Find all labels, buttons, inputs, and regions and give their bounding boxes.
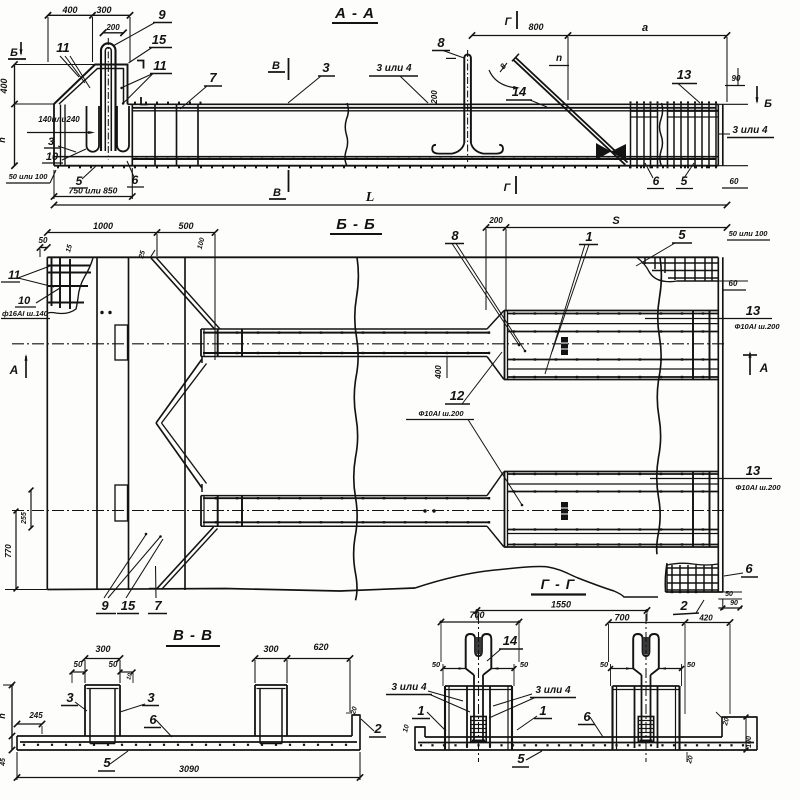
svg-text:14: 14 [503, 633, 518, 648]
svg-text:Б - Б: Б - Б [336, 216, 376, 233]
svg-text:11: 11 [56, 40, 70, 55]
svg-text:10: 10 [18, 295, 31, 307]
svg-text:h: h [0, 137, 7, 143]
svg-text:9: 9 [101, 598, 109, 613]
svg-text:420: 420 [698, 614, 713, 623]
svg-text:3: 3 [66, 690, 74, 705]
svg-text:50: 50 [687, 660, 696, 669]
svg-text:15: 15 [65, 244, 74, 253]
svg-text:10: 10 [46, 151, 59, 163]
svg-text:Г: Г [504, 182, 512, 194]
svg-text:200: 200 [430, 90, 439, 105]
svg-text:h: h [0, 713, 7, 719]
svg-text:300: 300 [96, 5, 111, 15]
svg-text:100: 100 [746, 736, 753, 748]
svg-text:15: 15 [152, 32, 167, 47]
svg-text:ф16АI ш.140: ф16АI ш.140 [2, 309, 49, 318]
svg-text:50: 50 [109, 660, 118, 669]
svg-text:50 или 100: 50 или 100 [729, 229, 769, 238]
svg-text:100: 100 [197, 237, 207, 250]
svg-text:Ф10АI ш.200: Ф10АI ш.200 [734, 322, 780, 331]
svg-text:8: 8 [451, 228, 459, 243]
svg-text:S: S [612, 215, 620, 227]
svg-text:11: 11 [8, 268, 21, 282]
svg-text:60: 60 [729, 279, 738, 288]
svg-text:3 или 4: 3 или 4 [732, 125, 768, 136]
svg-text:6: 6 [149, 712, 157, 727]
svg-text:В: В [273, 187, 281, 199]
svg-text:1: 1 [585, 229, 592, 244]
svg-text:5: 5 [103, 755, 111, 770]
svg-text:13: 13 [677, 67, 692, 82]
svg-text:8: 8 [437, 35, 445, 50]
svg-text:50: 50 [74, 660, 83, 669]
svg-text:5: 5 [681, 174, 688, 188]
svg-text:3090: 3090 [179, 764, 199, 774]
svg-text:11: 11 [153, 58, 167, 73]
svg-text:В: В [272, 60, 280, 72]
svg-text:400: 400 [0, 78, 9, 94]
svg-text:90: 90 [732, 74, 741, 83]
svg-text:1: 1 [417, 703, 424, 718]
svg-text:7: 7 [209, 70, 217, 85]
svg-text:Г - Г: Г - Г [541, 576, 576, 592]
svg-text:13: 13 [746, 303, 761, 318]
svg-text:25: 25 [138, 250, 147, 260]
svg-text:6: 6 [583, 709, 591, 724]
svg-text:Б: Б [10, 47, 18, 59]
svg-text:255: 255 [21, 512, 28, 525]
svg-text:245: 245 [28, 711, 43, 720]
svg-text:60: 60 [730, 177, 739, 186]
svg-text:15: 15 [121, 598, 136, 613]
svg-text:2: 2 [679, 598, 688, 613]
svg-text:3 или 4: 3 или 4 [535, 685, 571, 696]
svg-text:50: 50 [432, 660, 441, 669]
svg-text:Ф10АI ш.200: Ф10АI ш.200 [735, 483, 781, 492]
svg-text:200: 200 [488, 216, 503, 225]
svg-text:А: А [9, 363, 19, 377]
svg-text:L: L [365, 190, 375, 205]
svg-text:3 или 4: 3 или 4 [376, 63, 412, 74]
svg-text:5: 5 [678, 227, 686, 242]
svg-text:a: a [642, 22, 648, 34]
svg-text:3 или 4: 3 или 4 [391, 682, 427, 693]
svg-text:n: n [556, 53, 562, 64]
svg-text:500: 500 [178, 221, 193, 231]
svg-text:6: 6 [653, 174, 660, 188]
svg-text:400: 400 [434, 365, 443, 380]
svg-text:5: 5 [517, 751, 525, 766]
svg-text:300: 300 [263, 644, 278, 654]
svg-text:14: 14 [512, 84, 527, 99]
svg-text:3: 3 [322, 60, 330, 75]
svg-text:8: 8 [498, 61, 508, 71]
svg-text:3: 3 [48, 136, 54, 148]
svg-text:50 или 100: 50 или 100 [9, 172, 49, 181]
svg-text:12: 12 [450, 388, 465, 403]
svg-text:50: 50 [39, 236, 48, 245]
svg-text:Ф10АI ш.200: Ф10АI ш.200 [418, 409, 464, 418]
svg-text:9: 9 [158, 7, 166, 22]
svg-text:Б: Б [764, 98, 772, 110]
svg-text:300: 300 [95, 644, 110, 654]
svg-text:А: А [759, 361, 769, 375]
svg-text:50: 50 [520, 660, 529, 669]
svg-text:400: 400 [61, 5, 77, 15]
svg-text:200: 200 [105, 23, 120, 32]
svg-text:1000: 1000 [93, 221, 113, 231]
svg-text:770: 770 [4, 544, 13, 558]
svg-text:7: 7 [154, 598, 162, 613]
svg-text:13: 13 [746, 463, 761, 478]
svg-text:800: 800 [528, 22, 543, 32]
svg-text:1: 1 [539, 703, 546, 718]
svg-text:700: 700 [614, 613, 629, 623]
svg-text:620: 620 [313, 642, 328, 652]
svg-text:3: 3 [147, 690, 155, 705]
svg-text:Г: Г [505, 16, 513, 28]
svg-text:6: 6 [745, 561, 753, 576]
svg-text:2: 2 [373, 721, 382, 736]
svg-text:В - В: В - В [173, 627, 213, 644]
svg-text:45: 45 [0, 758, 7, 767]
svg-text:1550: 1550 [551, 600, 571, 610]
svg-text:50: 50 [600, 660, 609, 669]
svg-text:А - А: А - А [334, 5, 375, 22]
svg-text:20: 20 [722, 717, 731, 727]
svg-text:10: 10 [402, 724, 411, 733]
svg-text:750 или 850: 750 или 850 [69, 186, 118, 196]
svg-text:90: 90 [730, 600, 738, 607]
svg-text:140или240: 140или240 [38, 115, 80, 124]
